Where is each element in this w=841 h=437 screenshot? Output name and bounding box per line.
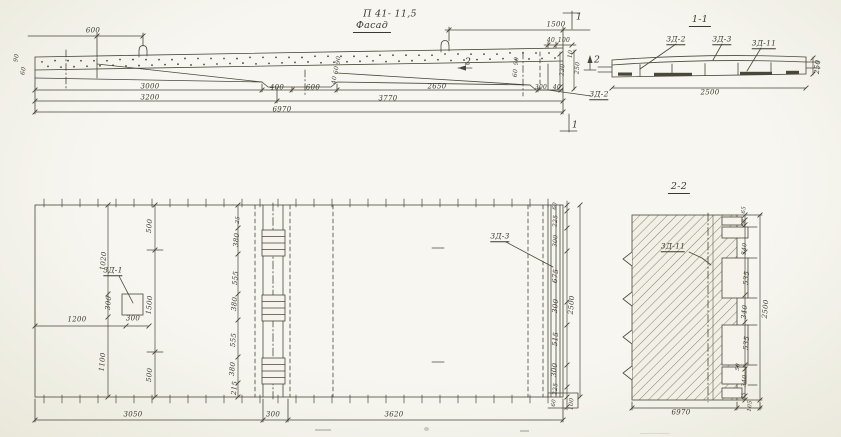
- part-label: 3Д-3: [712, 35, 731, 45]
- leader-lines: [119, 242, 553, 303]
- title-label: П 41- 11,5: [363, 9, 417, 19]
- dimension-label: 535: [743, 336, 751, 351]
- dimension-label: 600: [86, 28, 100, 35]
- scan-artifact: [424, 427, 429, 431]
- dimension-label: 90: [336, 56, 343, 65]
- dimension-label: 6970: [671, 410, 690, 417]
- dimension-label: 90: [514, 57, 521, 66]
- break-marks: [623, 252, 632, 380]
- title-label: Фасад: [353, 21, 391, 33]
- dimension-label: 60: [553, 202, 559, 210]
- section-1-1-view: [598, 44, 820, 77]
- dimension-label: 1200: [67, 317, 86, 324]
- dimension-label: 60: [513, 69, 520, 78]
- dimension-label: 340: [741, 243, 748, 256]
- dimension-label: 300: [105, 296, 113, 311]
- bearing-pad: [740, 72, 772, 75]
- dimension-label: 6970: [272, 107, 291, 114]
- dimension-label: 600: [306, 85, 320, 92]
- dimension-label: 3620: [384, 412, 403, 419]
- dimension-label: 250: [574, 62, 581, 75]
- dimension-label: 300: [535, 85, 547, 91]
- scan-artifact: [315, 429, 331, 431]
- dimension-label: 340: [741, 375, 748, 388]
- part-label: 3Д-2: [666, 35, 685, 45]
- dimension-label: 225: [552, 215, 559, 228]
- dimension-label: 675: [552, 269, 560, 284]
- dimension-label: 50: [736, 363, 742, 371]
- dimension-label: 300: [551, 363, 559, 378]
- dimension-label: 40: [332, 76, 339, 85]
- center-marks: [147, 248, 444, 362]
- dimension-label: 300: [552, 235, 559, 248]
- dimension-label: 10: [568, 50, 575, 59]
- dimension-label: 60: [334, 66, 341, 75]
- dimension-label: 500: [146, 368, 154, 383]
- dimension-label: 3200: [140, 95, 159, 102]
- dimension-label: 60: [552, 399, 558, 407]
- bearing-pad: [618, 73, 632, 76]
- dimension-label: 225: [552, 383, 559, 396]
- dimension-label: 3050: [123, 412, 142, 419]
- witness-lines: [35, 399, 563, 422]
- title-label: 2-2: [668, 182, 690, 194]
- bearing-pad: [654, 73, 692, 76]
- scan-artifact: [640, 433, 670, 434]
- dimension-label: 105: [748, 400, 754, 412]
- dimension-label: 40: [553, 85, 561, 91]
- dimension-label: 65: [742, 392, 748, 400]
- dimension-label: 250: [814, 60, 822, 75]
- bearing-pad: [786, 71, 799, 74]
- dimension-label: 100: [568, 398, 575, 411]
- dimension-label: 2500: [700, 90, 719, 97]
- dimension-label: 555: [232, 271, 240, 286]
- scan-artifact: [520, 430, 529, 432]
- dimension-label: 100: [558, 38, 570, 44]
- marker-label: 1: [572, 120, 578, 130]
- embedded-plate-3d1: [122, 294, 143, 315]
- part-label: 3Д-1: [103, 266, 122, 276]
- marker-label: 2: [465, 57, 471, 67]
- part-label: 3Д-3: [490, 232, 509, 242]
- dimension-label: 60: [742, 219, 748, 227]
- dimension-label: 3000: [140, 84, 159, 91]
- dimension-label: 300: [266, 412, 280, 419]
- dimension-label: 555: [230, 333, 238, 348]
- title-label: 1-1: [689, 15, 711, 27]
- drawing-linework: [0, 0, 841, 437]
- dimension-label: 380: [229, 362, 237, 377]
- dimension-label: 1500: [546, 22, 565, 29]
- dimension-label: 3770: [378, 96, 397, 103]
- dimension-label: 2650: [427, 84, 446, 91]
- dimension-label: 515: [552, 332, 560, 347]
- dimension-label: 535: [743, 271, 751, 286]
- dimension-label: 40: [547, 38, 555, 44]
- dimension-label: 300: [126, 316, 140, 323]
- dimension-label: 380: [233, 233, 241, 248]
- part-label: 3Д-11: [752, 39, 776, 49]
- dimension-label: 215: [231, 381, 239, 396]
- part-label: 3Д-2: [589, 90, 608, 100]
- dimension-label: 25: [236, 216, 242, 224]
- edge-notch: [722, 217, 742, 225]
- dimension-label: 230: [559, 64, 566, 77]
- dimension-label: 300: [552, 299, 560, 314]
- dimension-label: 400: [270, 85, 284, 92]
- dimension-label: 500: [146, 219, 154, 234]
- marker-label: 1: [576, 12, 582, 22]
- dimension-label: 380: [231, 297, 239, 312]
- drawing-canvas: П 41- 11,5Фасад1-12-26001500906090604090…: [0, 0, 841, 437]
- part-label: 3Д-11: [661, 242, 685, 252]
- marker-label: 2: [594, 55, 600, 65]
- dimension-label: 65: [742, 206, 748, 214]
- edge-notch: [722, 227, 748, 238]
- edge-notch: [722, 388, 742, 398]
- dimension-label: 340: [741, 305, 749, 320]
